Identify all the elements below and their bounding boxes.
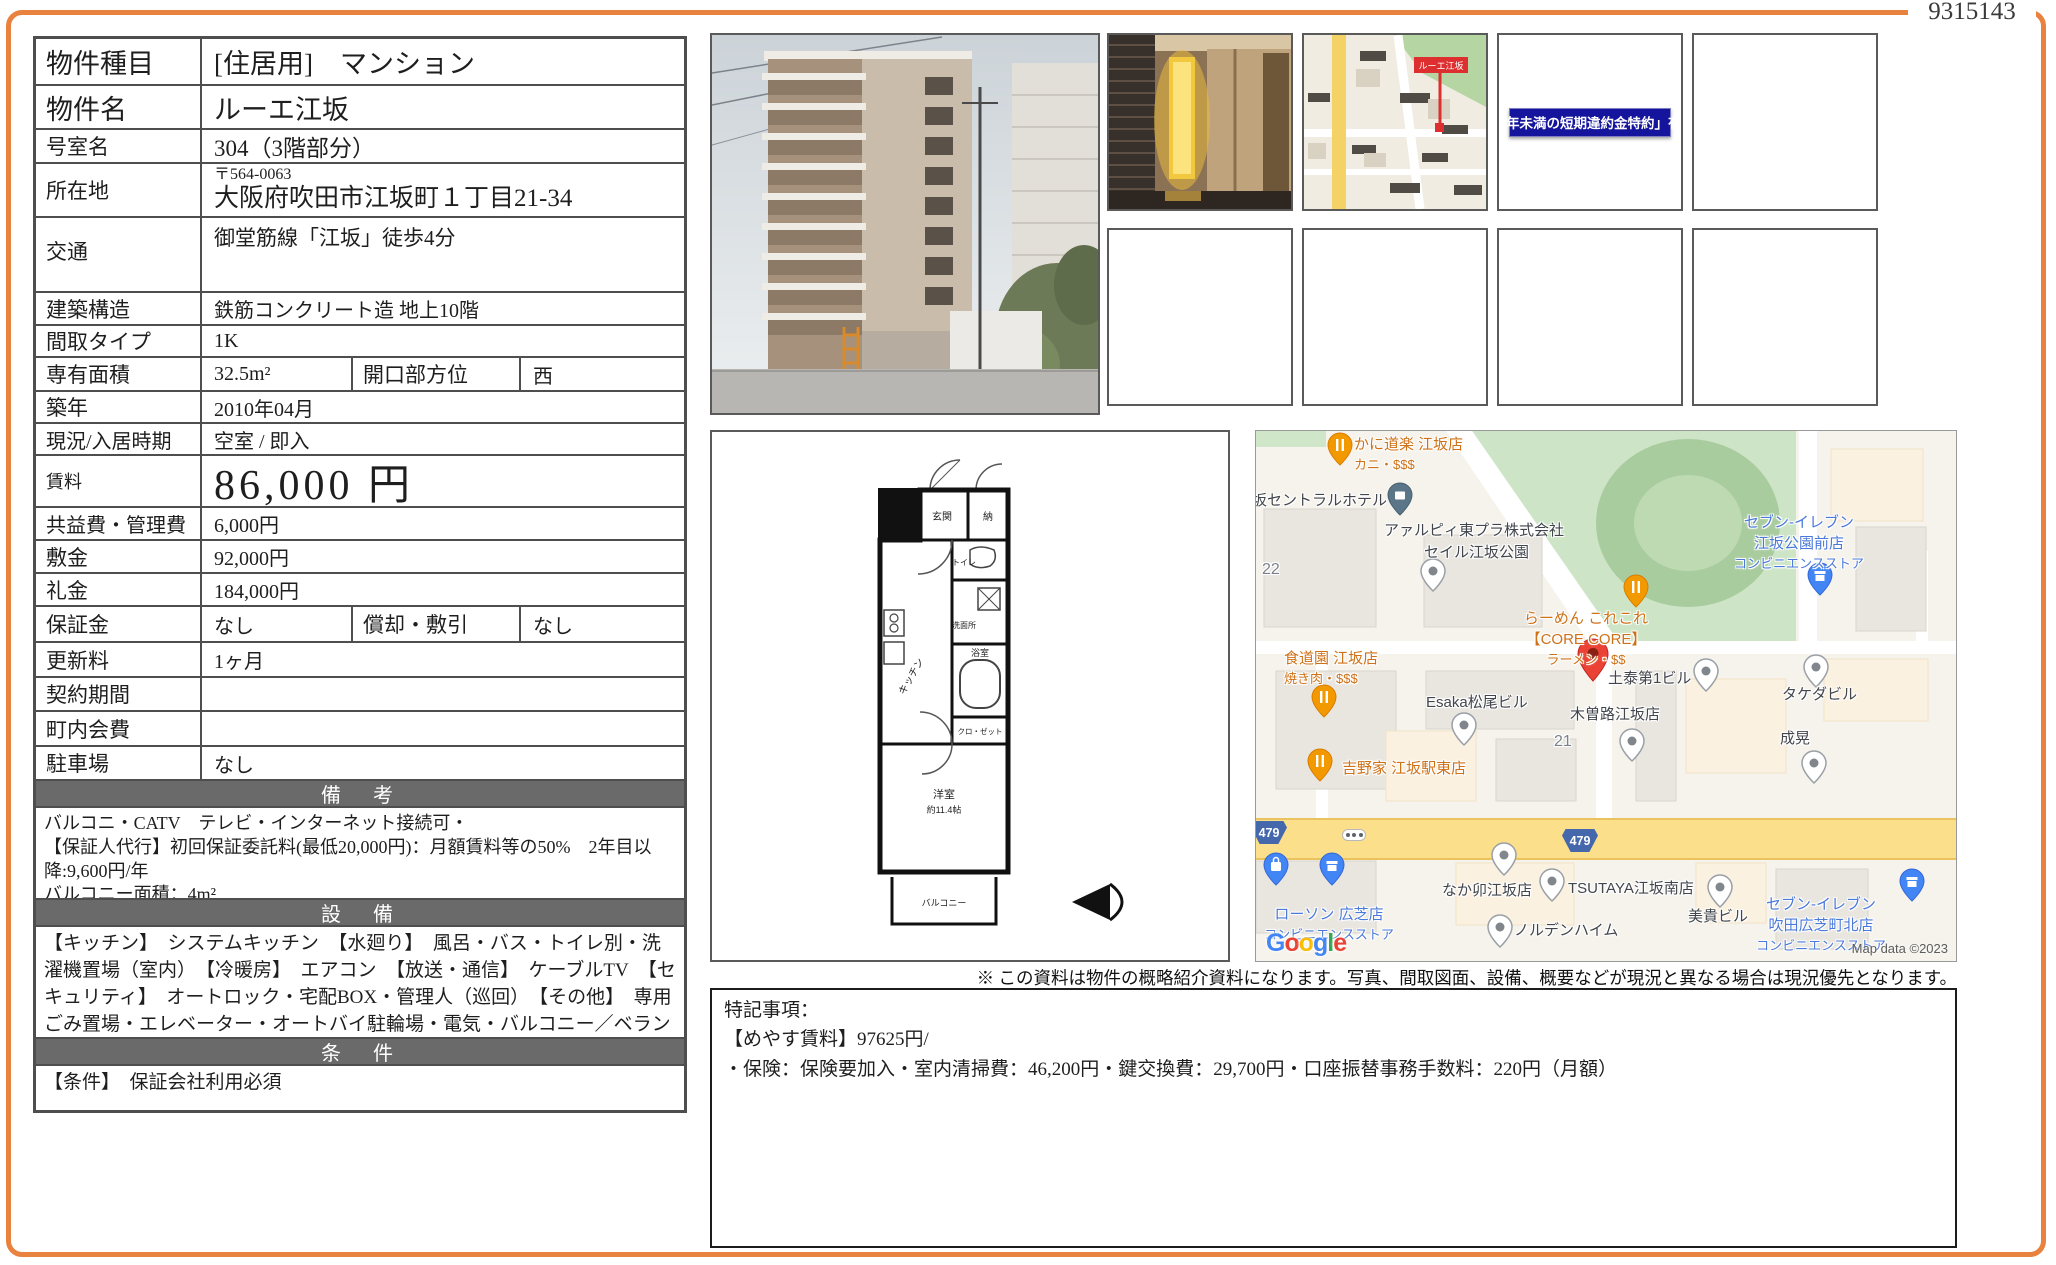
spec-label: 間取タイプ (36, 326, 202, 356)
map-poi-label: 吉野家 江坂駅東店 (1342, 757, 1466, 778)
spec-label: 償却・敷引 (353, 607, 521, 641)
location-map: かに道楽 江坂店カニ・$$$ 坂セントラルホテル アァルピィ東プラ株式会社 セイ… (1255, 430, 1957, 962)
spec-label: 契約期間 (36, 678, 202, 710)
spec-label: 物件種目 (36, 39, 202, 84)
building-photo-graphic (712, 35, 1098, 413)
spec-value: 92,000円 (202, 541, 684, 572)
table-row: 号室名304（3階部分） (36, 128, 684, 162)
entrance-photo-graphic (1109, 35, 1291, 209)
spec-label: 礼金 (36, 574, 202, 605)
map-poi-label: TSUTAYA江坂南店 (1568, 877, 1694, 898)
spec-label: 物件名 (36, 86, 202, 128)
spec-value: なし (202, 747, 684, 779)
map-poi-label: セブン-イレブン江坂公園前店コンビニエンスストア (1724, 511, 1874, 572)
spec-label: 現況/入居時期 (36, 424, 202, 454)
special-notes-line: ・保険：保険要加入・室内清掃費：46,200円・鍵交換費：29,700円・口座振… (724, 1055, 1943, 1084)
traffic-signal-icon (1342, 829, 1366, 841)
spec-label: 号室名 (36, 130, 202, 162)
table-row: 礼金184,000円 (36, 572, 684, 605)
rent-value: 86,000 円 (202, 456, 684, 506)
spec-label: 建築構造 (36, 293, 202, 324)
conditions-text: 【条件】 保証会社利用必須 (36, 1064, 684, 1110)
spec-value: 鉄筋コンクリート造 地上10階 (202, 293, 684, 324)
floorplan-label-entrance: 玄関 (932, 510, 952, 523)
spec-label: 開口部方位 (353, 358, 521, 390)
spec-value: ルーエ江坂 (202, 86, 684, 128)
map-poi-label: アァルピィ東プラ株式会社 (1384, 519, 1564, 540)
map-attribution: Map data ©2023 (1852, 941, 1948, 956)
section-header-equipment: 設 備 (36, 898, 684, 925)
table-row: 駐車場なし (36, 745, 684, 779)
map-poi-label: 成晃 (1780, 727, 1810, 748)
spec-label: 保証金 (36, 607, 202, 641)
table-row: 築年2010年04月 (36, 390, 684, 422)
spec-label: 駐車場 (36, 747, 202, 779)
floorplan-label-closet: クロ・ゼット (958, 726, 1003, 736)
map-poi-label: タケダビル (1782, 683, 1857, 704)
table-row: 専有面積 32.5m² 開口部方位 西 (36, 356, 684, 390)
spec-value (202, 712, 684, 745)
spec-label: 賃料 (36, 456, 202, 506)
empty-photo-slot (1497, 228, 1683, 406)
spec-value: 西 (521, 358, 684, 390)
map-poi-label: らーめん これこれ【CORE CORE】ラーメン・$$ (1504, 607, 1668, 668)
spec-label: 所在地 (36, 164, 202, 216)
spec-label: 敷金 (36, 541, 202, 572)
spec-label: 築年 (36, 392, 202, 422)
special-notes-title: 特記事項： (724, 996, 1943, 1025)
floor-plan: 玄関 納 トイレ 洗面所 浴室 キッチン クロ・ゼット 洋室 約11.4帖 バル… (710, 430, 1230, 962)
section-header-conditions: 条 件 (36, 1037, 684, 1064)
empty-photo-slot (1692, 228, 1878, 406)
spec-value: 184,000円 (202, 574, 684, 605)
map-block-number: 22 (1262, 561, 1280, 579)
equipment-text: 【キッチン】 システムキッチン 【水廻り】 風呂・バス・トイレ別・洗濯機置場（室… (36, 925, 684, 1037)
entrance-photo (1107, 33, 1293, 211)
spec-value: 304（3階部分） (202, 130, 684, 162)
map-poi-label: セイル江坂公園 (1424, 541, 1529, 562)
floorplan-label-toilet: トイレ (952, 558, 976, 567)
floorplan-label-bath: 浴室 (971, 647, 989, 658)
table-row: 共益費・管理費6,000円 (36, 506, 684, 539)
map-poi-label: ノルデンハイム (1514, 919, 1618, 940)
floorplan-label-room: 洋室 (933, 787, 955, 801)
empty-photo-slot (1302, 228, 1488, 406)
contract-banner-card: 「1年未満の短期違約金特約」有り (1497, 33, 1683, 211)
spec-value (202, 678, 684, 710)
table-row: 更新料1ヶ月 (36, 641, 684, 676)
map-poi-label: 木曽路江坂店 (1570, 703, 1660, 724)
spec-value: なし (521, 607, 684, 641)
remarks-line: バルコニ・CATV テレビ・インターネット接続可・ (44, 812, 676, 836)
building-photo (710, 33, 1100, 415)
table-row: 間取タイプ1K (36, 324, 684, 356)
spec-value: 32.5m² (202, 358, 353, 390)
table-row: 物件名ルーエ江坂 (36, 84, 684, 128)
spec-value: 〒564-0063 大阪府吹田市江坂町１丁目21-34 (202, 164, 684, 216)
map-poi-label: 食道園 江坂店焼き肉・$$$ (1284, 647, 1378, 687)
spec-label: 町内会費 (36, 712, 202, 745)
spec-label: 共益費・管理費 (36, 508, 202, 539)
table-row: 所在地 〒564-0063 大阪府吹田市江坂町１丁目21-34 (36, 162, 684, 216)
empty-photo-slot (1107, 228, 1293, 406)
section-header-remarks: 備 考 (36, 779, 684, 806)
floorplan-label-room-size: 約11.4帖 (927, 804, 962, 815)
map-poi-label: 坂セントラルホテル (1255, 489, 1387, 510)
spec-value: なし (202, 607, 353, 641)
map-poi-label: Esaka松尾ビル (1426, 691, 1528, 712)
table-row: 町内会費 (36, 710, 684, 745)
table-row: 現況/入居時期空室 / 即入 (36, 422, 684, 454)
floorplan-label-storage: 納 (983, 510, 993, 523)
spec-label: 交通 (36, 218, 202, 291)
document-id: 9315143 (1908, 0, 2036, 26)
table-row: 建築構造鉄筋コンクリート造 地上10階 (36, 291, 684, 324)
spec-value: 空室 / 即入 (202, 424, 684, 454)
postal-code: 〒564-0063 (214, 166, 684, 184)
floorplan-label-balcony: バルコニー (922, 898, 967, 908)
map-poi-label: 美貴ビル (1688, 905, 1748, 926)
floorplan-label-washroom: 洗面所 (952, 620, 976, 630)
table-row: 保証金 なし 償却・敷引 なし (36, 605, 684, 641)
area-map-graphic: ルーエ江坂 (1304, 35, 1486, 209)
floor-plan-graphic: 玄関 納 トイレ 洗面所 浴室 キッチン クロ・ゼット 洋室 約11.4帖 バル… (712, 432, 1228, 960)
spec-value: 2010年04月 (202, 392, 684, 422)
spec-value: [住居用] マンション (202, 39, 684, 84)
disclaimer-note: ※ この資料は物件の概略紹介資料になります。写真、間取図面、設備、概要などが現況… (710, 965, 1957, 990)
map-block-number: 21 (1554, 733, 1572, 751)
table-row: 敷金92,000円 (36, 539, 684, 572)
map-poi-label: 土泰第1ビル (1608, 667, 1691, 688)
table-row: 交通御堂筋線「江坂」徒歩4分 (36, 216, 684, 291)
table-row: 物件種目[住居用] マンション (36, 39, 684, 84)
google-logo: Google (1266, 929, 1346, 958)
address: 大阪府吹田市江坂町１丁目21-34 (214, 184, 684, 214)
property-spec-table: 物件種目[住居用] マンション 物件名ルーエ江坂 号室名304（3階部分） 所在… (33, 36, 687, 1113)
map-poi-label: かに道楽 江坂店カニ・$$$ (1354, 433, 1463, 473)
special-notes-box: 特記事項： 【めやす賃料】97625円/ ・保険：保険要加入・室内清掃費：46,… (710, 988, 1957, 1248)
spec-label: 専有面積 (36, 358, 202, 390)
spec-value: 御堂筋線「江坂」徒歩4分 (202, 218, 684, 291)
spec-label: 更新料 (36, 643, 202, 676)
spec-value: 6,000円 (202, 508, 684, 539)
area-map-thumbnail: ルーエ江坂 (1302, 33, 1488, 211)
map-thumb-label: ルーエ江坂 (1418, 61, 1463, 71)
table-row: 賃料86,000 円 (36, 454, 684, 506)
short-term-penalty-banner: 「1年未満の短期違約金特約」有り (1509, 108, 1671, 137)
table-row: 契約期間 (36, 676, 684, 710)
map-poi-label: なか卯江坂店 (1442, 879, 1532, 900)
spec-value: 1ヶ月 (202, 643, 684, 676)
remarks-line: 【保証人代行】初回保証委託料(最低20,000円)：月額賃料等の50% 2年目以… (44, 836, 676, 884)
remarks-text: バルコニ・CATV テレビ・インターネット接続可・ 【保証人代行】初回保証委託料… (36, 806, 684, 898)
special-notes-line: 【めやす賃料】97625円/ (724, 1025, 1943, 1054)
empty-photo-slot (1692, 33, 1878, 211)
spec-value: 1K (202, 326, 684, 356)
property-sheet: 9315143 物件種目[住居用] マンション 物件名ルーエ江坂 号室名304（… (0, 0, 2056, 1265)
